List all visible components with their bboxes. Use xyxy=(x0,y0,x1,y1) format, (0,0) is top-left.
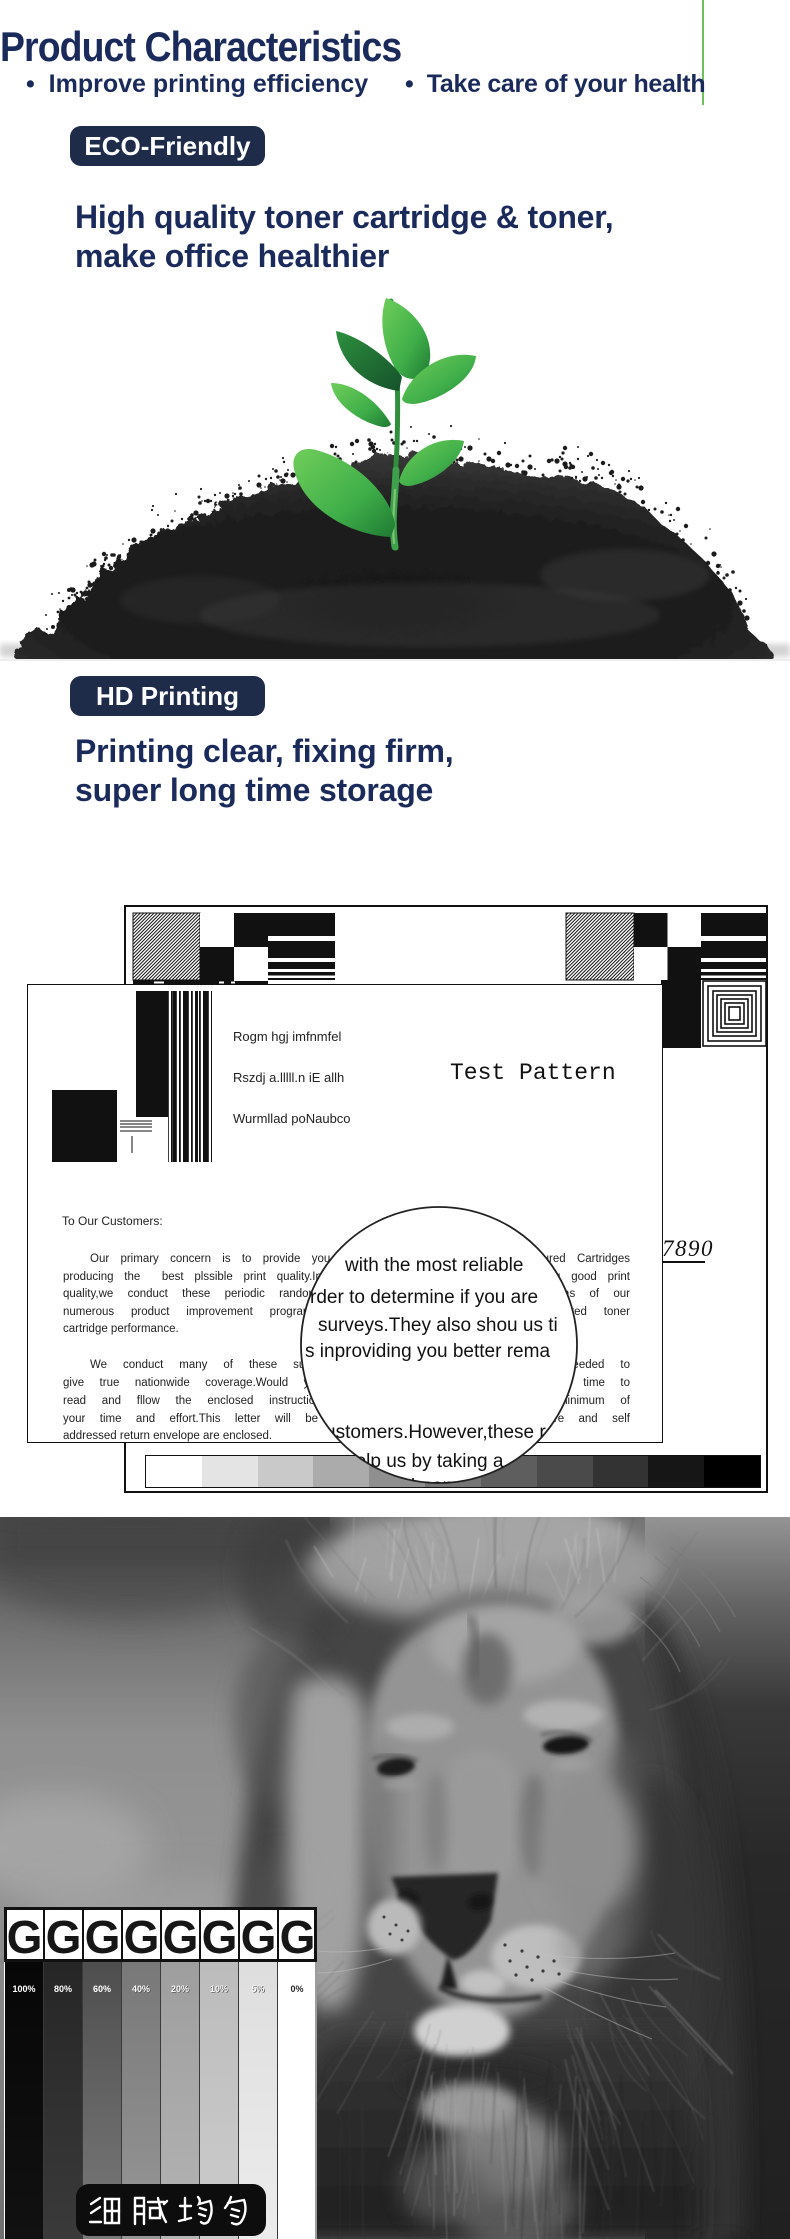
svg-text:has been: has been xyxy=(375,1476,453,1497)
svg-text:60%: 60% xyxy=(93,1984,111,1994)
svg-text:G: G xyxy=(280,1911,316,1963)
svg-text:G: G xyxy=(124,1911,160,1963)
svg-text:G: G xyxy=(163,1911,199,1963)
svg-text:help us by taking a: help us by taking a xyxy=(345,1451,504,1472)
svg-text:G: G xyxy=(85,1911,121,1963)
svg-text:rder to determine if you are: rder to determine if you are xyxy=(310,1287,538,1308)
svg-text:s inproviding you better rema: s inproviding you better rema xyxy=(305,1341,550,1362)
svg-text:G: G xyxy=(241,1911,277,1963)
svg-text:G: G xyxy=(46,1911,82,1963)
svg-text:5%: 5% xyxy=(251,1984,264,1994)
svg-text:10%: 10% xyxy=(210,1984,228,1994)
svg-text:G: G xyxy=(202,1911,238,1963)
svg-text:G: G xyxy=(7,1911,43,1963)
svg-text:surveys.They also shou us ti: surveys.They also shou us ti xyxy=(318,1315,558,1336)
svg-text:ustomers.However,these r: ustomers.However,these r xyxy=(325,1422,546,1443)
svg-text:40%: 40% xyxy=(132,1984,150,1994)
svg-text:7890: 7890 xyxy=(662,1236,714,1261)
svg-text:80%: 80% xyxy=(54,1984,72,1994)
svg-text:100%: 100% xyxy=(12,1984,35,1994)
svg-text:with the most reliable: with the most reliable xyxy=(344,1255,523,1276)
svg-text:20%: 20% xyxy=(171,1984,189,1994)
svg-text:0%: 0% xyxy=(290,1984,303,1994)
